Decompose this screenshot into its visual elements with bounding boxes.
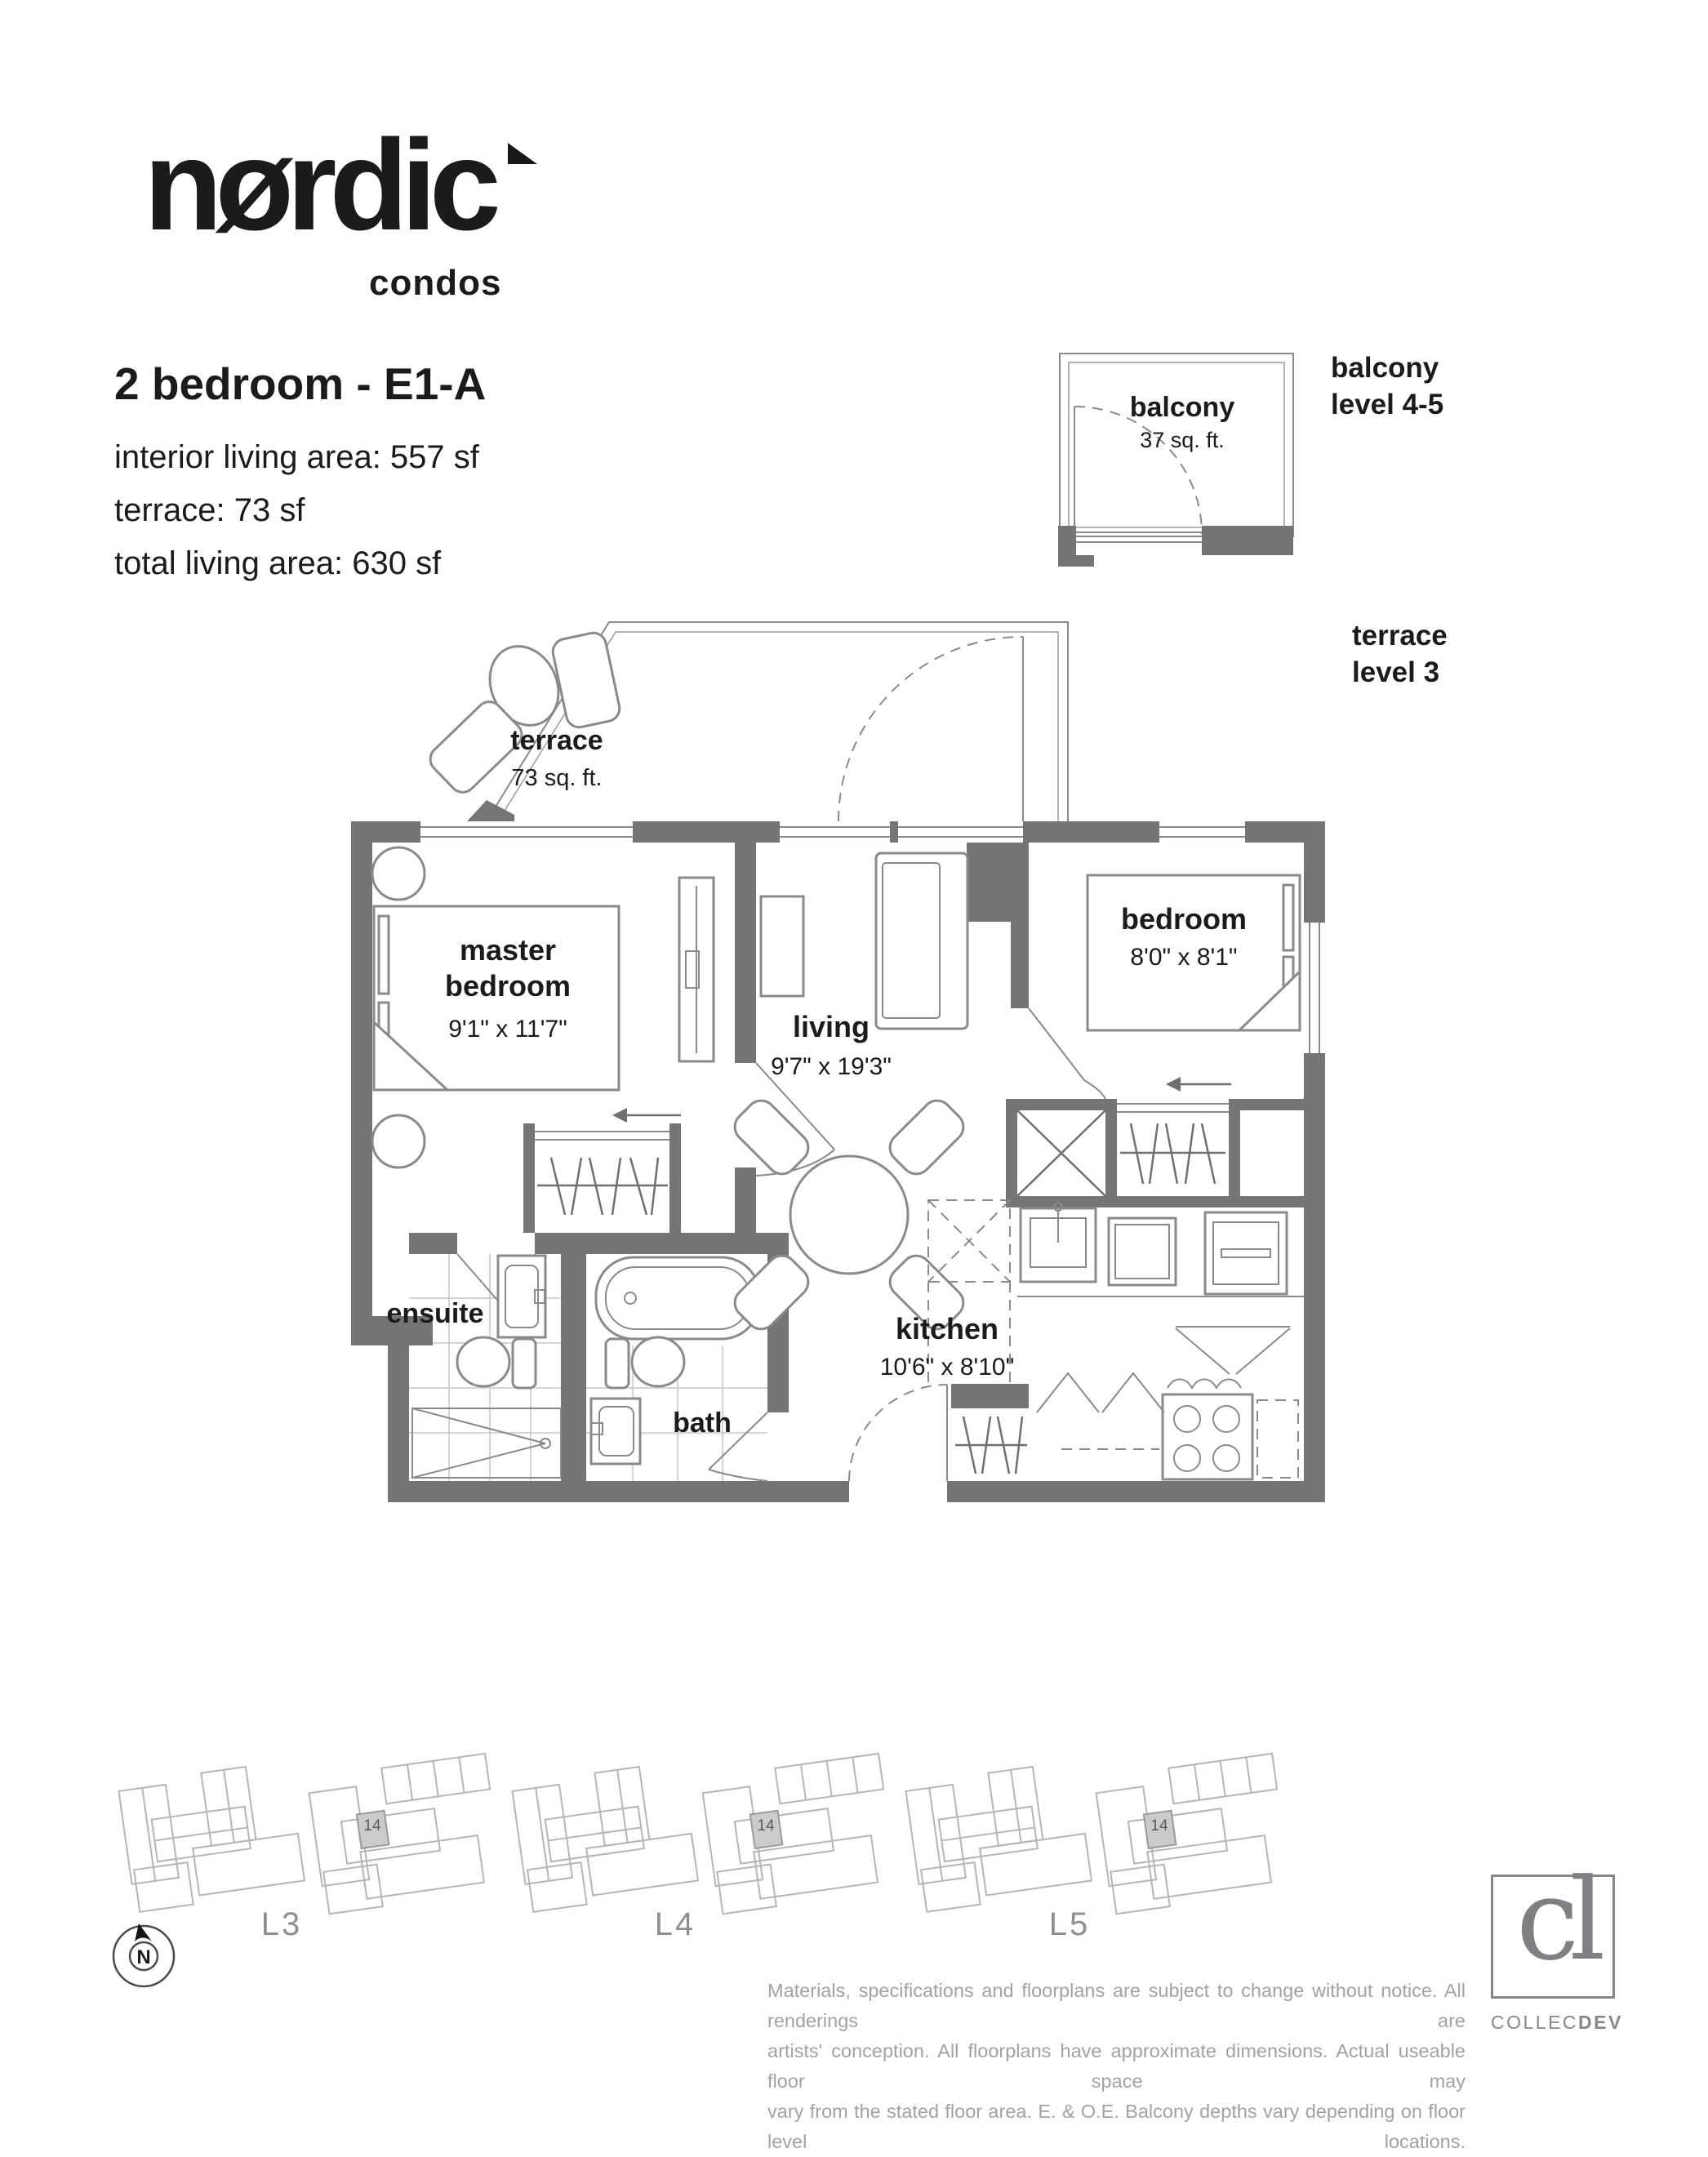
keyplan-row: 14 14 14 L3 L4 L5: [0, 1739, 1708, 1976]
bedroom-side-window: [1304, 914, 1325, 1061]
keyplan-l5: [905, 1754, 1291, 1915]
developer-name: COLLECDEV: [1491, 2012, 1615, 2034]
balcony-inset-area: 37 sq. ft.: [1140, 428, 1225, 452]
area-summary: interior living area: 557 sf terrace: 73…: [114, 431, 479, 590]
unit-highlight-label: 14: [757, 1817, 775, 1835]
keyplan-level-label: L3: [261, 1906, 303, 1942]
brand-logo-flag-icon: [508, 143, 540, 167]
unit-highlight-label: 14: [1150, 1817, 1168, 1835]
balcony-key-diagram: balcony 37 sq. ft.: [1058, 351, 1303, 573]
svg-text:10'6" x 8'10": 10'6" x 8'10": [880, 1354, 1015, 1381]
developer-name-light: COLLEC: [1491, 2012, 1578, 2033]
unit-highlight-label: 14: [363, 1817, 381, 1835]
balcony-inset-label: balcony: [1130, 392, 1235, 423]
balcony-door-swing: [1074, 407, 1202, 534]
developer-logo: cl: [1491, 1875, 1615, 1999]
terrace-area-line: terrace: 73 sf: [114, 484, 479, 537]
balcony-level-label-line1: balcony: [1331, 349, 1443, 386]
svg-text:bedroom: bedroom: [1121, 902, 1247, 936]
master-window: [412, 821, 641, 843]
terrace-area: 73 sq. ft.: [511, 765, 602, 791]
bedroom-door: [1029, 1008, 1084, 1080]
keyplan-level-label: L4: [655, 1906, 696, 1942]
room-terrace: terrace 73 sq. ft.: [425, 622, 1068, 821]
svg-text:9'1" x 11'7": 9'1" x 11'7": [448, 1016, 567, 1043]
disclaimer-text: Materials, specifications and floorplans…: [767, 1976, 1466, 2157]
svg-text:9'7" x 19'3": 9'7" x 19'3": [771, 1053, 892, 1080]
balcony-level-label: balcony level 4-5: [1331, 349, 1443, 423]
interior-area-line: interior living area: 557 sf: [114, 431, 479, 484]
svg-text:N: N: [136, 1946, 150, 1968]
keyplan-l3: [118, 1754, 504, 1915]
shaft-closet: [1017, 1110, 1105, 1196]
bifold-door: [1037, 1373, 1099, 1412]
bifold-door: [1102, 1373, 1164, 1412]
brand-logo: nørdic: [144, 121, 494, 250]
balcony-level-label-line2: level 4-5: [1331, 386, 1443, 423]
terrace-door-swing: [838, 637, 1023, 821]
room-ensuite: ensuite: [386, 1254, 561, 1478]
master-closet: [535, 1108, 681, 1215]
svg-text:ensuite: ensuite: [386, 1298, 483, 1329]
terrace-label: terrace: [510, 725, 603, 756]
disclaimer-line: Materials, specifications and floorplans…: [767, 1976, 1466, 2036]
svg-text:kitchen: kitchen: [896, 1312, 999, 1345]
fridge: [1205, 1212, 1287, 1294]
svg-text:living: living: [793, 1010, 870, 1043]
keyplan-l4: [511, 1754, 897, 1915]
terrace-door-sill: [898, 827, 1023, 837]
entry-door-swing: [849, 1385, 947, 1481]
bath-toilet: [632, 1337, 684, 1386]
terrace-level-label: terrace level 3: [1352, 617, 1448, 691]
svg-text:bath: bath: [673, 1408, 732, 1439]
north-compass-icon: N: [96, 1907, 194, 2005]
svg-text:master: master: [460, 933, 556, 967]
disclaimer-line: artists' conception. All floorplans have…: [767, 2036, 1466, 2097]
svg-text:8'0" x 8'1": 8'0" x 8'1": [1130, 944, 1237, 971]
ensuite-shower: [412, 1408, 561, 1478]
disclaimer-line: vary from the stated floor area. E. & O.…: [767, 2097, 1466, 2157]
sofa: [876, 853, 967, 1029]
terrace-chair: [550, 630, 621, 729]
room-bedroom: bedroom 8'0" x 8'1": [1029, 875, 1300, 1099]
terrace-level-label-line2: level 3: [1352, 654, 1448, 691]
coffee-table: [761, 896, 803, 996]
bedroom-window: [1151, 821, 1253, 843]
svg-text:bedroom: bedroom: [445, 969, 571, 1003]
dining-set: [729, 1095, 970, 1336]
nightstand: [372, 847, 425, 900]
bath-toilet-tank: [606, 1339, 629, 1388]
brand-logo-subtext: condos: [369, 263, 501, 304]
terrace-level-label-line1: terrace: [1352, 617, 1448, 654]
floor-plan: terrace 73 sq. ft.: [327, 604, 1355, 1568]
living-window: [772, 821, 898, 843]
stove: [1163, 1380, 1252, 1480]
developer-name-bold: DEV: [1578, 2012, 1623, 2033]
developer-monogram: cl: [1516, 1854, 1595, 1986]
dining-table: [790, 1156, 908, 1274]
total-area-line: total living area: 630 sf: [114, 537, 479, 590]
page-title: 2 bedroom - E1-A: [114, 358, 486, 410]
entry-closet: [955, 1417, 1027, 1474]
ensuite-toilet: [457, 1337, 509, 1386]
nightstand: [372, 1115, 425, 1167]
dishwasher: [1109, 1218, 1176, 1285]
bedroom-closet: [1117, 1077, 1231, 1184]
keyplan-level-label: L5: [1049, 1906, 1091, 1942]
room-kitchen: kitchen 10'6" x 8'10": [880, 1200, 1304, 1479]
